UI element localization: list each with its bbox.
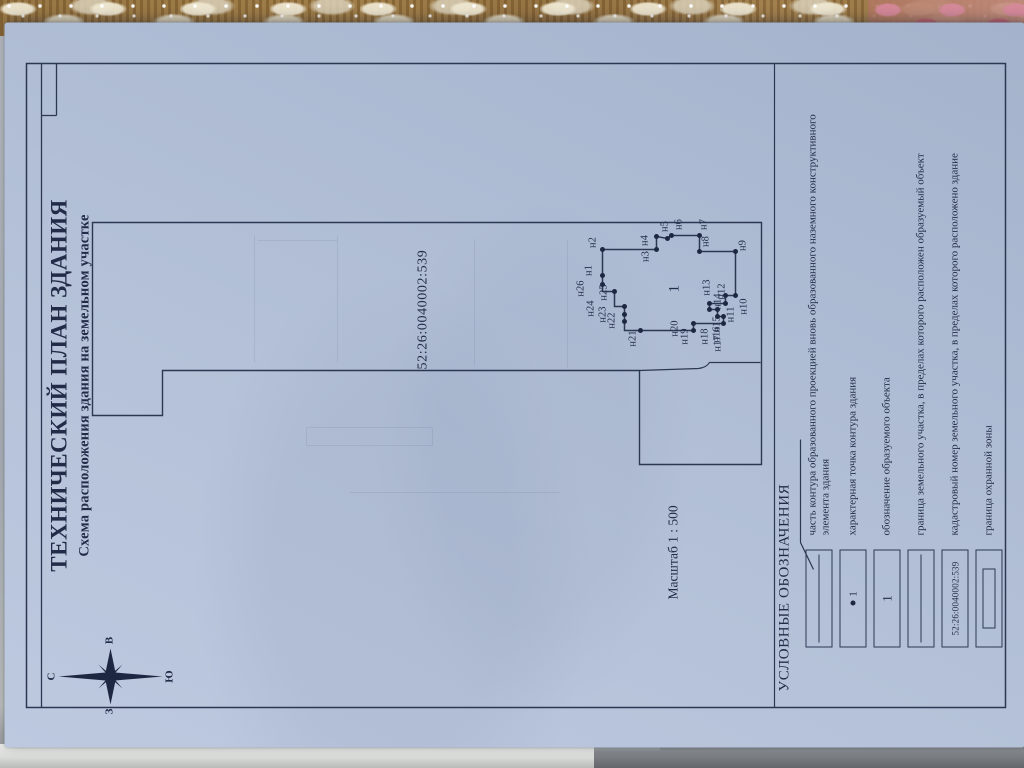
legend-row-4: граница земельного участка, в пределах к… (908, 88, 935, 648)
vertex-label-н5: н5 (661, 221, 671, 232)
compass-north-label: С (46, 673, 58, 681)
vertex-label-н6: н6 (675, 219, 685, 230)
legend-symbol-number: 1 (874, 550, 901, 648)
vertex-dot-н13 (707, 301, 712, 306)
vertex-label-н11: н11 (727, 307, 737, 323)
legend-row-text: часть контура образованного проекцией вн… (806, 106, 832, 536)
scale-label: Масштаб 1 : 500 (666, 505, 682, 599)
vertex-label-н13: н13 (703, 279, 713, 295)
vertex-label-н20: н20 (671, 320, 681, 336)
compass-east-label: В (104, 637, 116, 644)
vertex-label-н21: н21 (629, 330, 639, 346)
under-sheet-edge (0, 744, 660, 768)
vertex-label-н2: н2 (589, 237, 599, 248)
vertex-label-н4: н4 (641, 235, 651, 246)
legend-symbol-zone (976, 550, 1003, 648)
legend-symbol-cadnum: 52:26:0040002:539 (942, 550, 969, 648)
vertex-label-н10: н10 (740, 298, 750, 314)
legend-row-text: граница охранной зоны (983, 425, 996, 535)
vertex-dot-н21 (638, 328, 643, 333)
vertex-dot-н24 (622, 304, 627, 309)
cadastral-number-label: 52:26:0040002:539 (416, 250, 432, 370)
vertex-dot-н16 (715, 314, 720, 319)
parcel-inner-boundary (640, 363, 761, 371)
legend-cadastral-number: 52:26:0040002:539 (950, 562, 960, 636)
vertex-label-н23: н23 (599, 306, 609, 322)
vertex-dot-н12 (723, 301, 728, 306)
vertex-label-н9: н9 (739, 240, 749, 251)
page-title: ТЕХНИЧЕСКИЙ ПЛАН ЗДАНИЯ (47, 64, 73, 708)
vertex-dot-н19 (691, 321, 696, 326)
vertex-dot-н3 (654, 247, 659, 252)
vertex-label-н18: н18 (701, 328, 711, 344)
vertex-dot-н26 (600, 282, 605, 287)
legend-row-3: 1обозначение образуемого объекта (874, 88, 901, 648)
vertex-label-н24: н24 (587, 300, 597, 316)
legend-row-5: 52:26:0040002:539кадастровый номер земел… (942, 88, 969, 648)
legend: часть контура образованного проекцией вн… (806, 88, 1003, 648)
legend-zone-symbol (983, 569, 996, 629)
compass-south-label: Ю (164, 670, 176, 682)
vertex-label-н1: н1 (585, 265, 595, 276)
vertex-dot-н8 (697, 249, 702, 254)
vertex-dot-н4 (654, 234, 659, 239)
vertex-dot-н10 (733, 293, 738, 298)
legend-line-symbol (921, 555, 922, 643)
legend-row-text: обозначение образуемого объекта (881, 377, 894, 535)
legend-row-6: граница охранной зоны (976, 88, 1003, 648)
vertex-label-н3: н3 (642, 251, 652, 262)
photo-scene: ТЕХНИЧЕСКИЙ ПЛАН ЗДАНИЯ Схема расположен… (0, 0, 1024, 768)
legend-symbol-midline (806, 550, 833, 648)
vertex-label-н17: н17 (714, 335, 724, 351)
vertex-dot-н20 (691, 328, 696, 333)
building-designation-label: 1 (667, 285, 684, 293)
legend-point-number: 1 (847, 591, 859, 597)
vertex-label-н22: н22 (608, 312, 618, 328)
vertex-dot-н6 (669, 233, 674, 238)
vertex-label-н19: н19 (681, 328, 691, 344)
vertex-label-н7: н7 (700, 219, 710, 230)
vertex-dot-н22 (622, 319, 627, 324)
vertex-dot-н23 (622, 312, 627, 317)
vertex-label-н26: н26 (577, 280, 587, 296)
legend-point-symbol (851, 601, 856, 606)
compass-west-label: З (104, 709, 116, 715)
page-subtitle: Схема расположения здания на земельном у… (77, 64, 94, 708)
vertex-dot-н14 (707, 307, 712, 312)
legend-title: УСЛОВНЫЕ ОБОЗНАЧЕНИЯ (777, 484, 794, 692)
compass-rose (59, 649, 163, 705)
vertex-dot-н15 (715, 307, 720, 312)
technical-plan-sheet: ТЕХНИЧЕСКИЙ ПЛАН ЗДАНИЯ Схема расположен… (5, 23, 1024, 748)
legend-row-text: граница земельного участка, в пределах к… (915, 153, 928, 535)
legend-object-number: 1 (879, 595, 895, 602)
legend-symbol-midline (908, 550, 935, 648)
vertex-dot-н18 (721, 321, 726, 326)
legend-row-1: часть контура образованного проекцией вн… (806, 88, 833, 648)
legend-line-symbol (819, 555, 820, 643)
vertex-dot-н17 (721, 314, 726, 319)
vertex-label-н8: н8 (702, 236, 712, 247)
legend-row-2: 1характерная точка контура здания (840, 88, 867, 648)
vertex-dot-н25 (612, 289, 617, 294)
legend-row-text: кадастровый номер земельного участка, в … (949, 153, 962, 535)
vertex-dot-н2 (600, 247, 605, 252)
vertex-dot-н1 (600, 273, 605, 278)
faint-erased-lines (255, 236, 568, 493)
legend-symbol-point: 1 (840, 550, 867, 648)
legend-row-text: характерная точка контура здания (847, 377, 860, 536)
